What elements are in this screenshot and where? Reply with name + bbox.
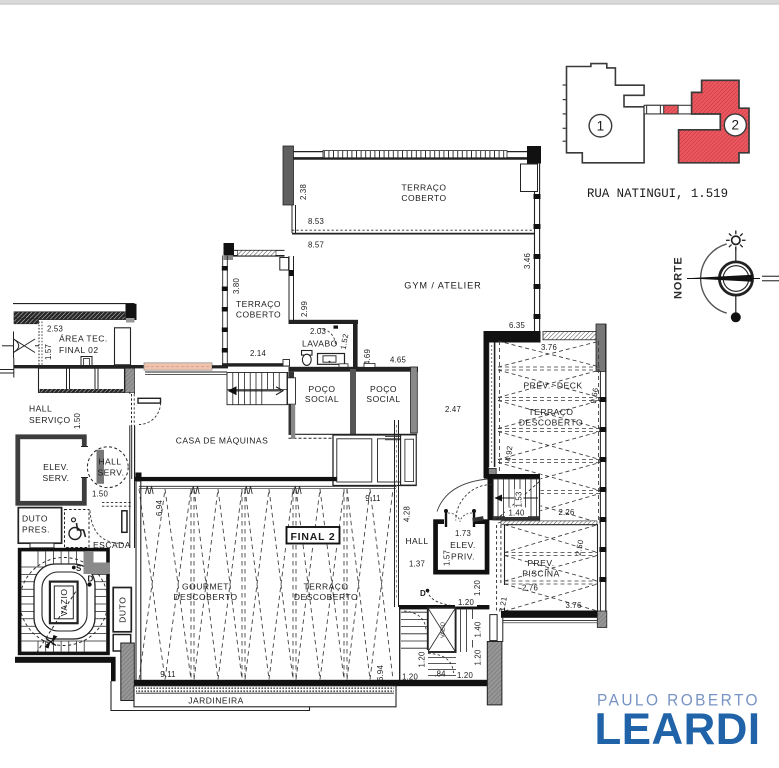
svg-text:1.53: 1.53 — [515, 492, 524, 508]
svg-text:SOCIAL: SOCIAL — [305, 394, 339, 404]
svg-text:1.57: 1.57 — [443, 550, 452, 566]
svg-text:D: D — [88, 575, 94, 584]
svg-text:4.69: 4.69 — [363, 349, 372, 365]
svg-text:HALL: HALL — [29, 404, 52, 414]
svg-text:TERRAÇO: TERRAÇO — [236, 299, 281, 309]
svg-text:1.40: 1.40 — [474, 621, 483, 637]
svg-text:1.73: 1.73 — [455, 529, 471, 538]
svg-text:1.20: 1.20 — [474, 649, 483, 665]
svg-text:3.76: 3.76 — [541, 343, 557, 352]
svg-text:1.20: 1.20 — [458, 598, 474, 607]
svg-text:9.11: 9.11 — [365, 494, 380, 503]
svg-text:1.37: 1.37 — [409, 560, 425, 569]
svg-text:6.35: 6.35 — [509, 321, 525, 330]
svg-text:3.80: 3.80 — [232, 278, 241, 294]
svg-text:1.20: 1.20 — [418, 651, 427, 667]
svg-text:HALL: HALL — [405, 536, 428, 546]
svg-text:1.50: 1.50 — [92, 490, 108, 499]
svg-text:3.46: 3.46 — [523, 253, 532, 269]
svg-text:SERV.: SERV. — [97, 468, 124, 478]
svg-text:1.20: 1.20 — [473, 580, 482, 596]
svg-text:2.38: 2.38 — [299, 184, 308, 200]
svg-text:2.99: 2.99 — [300, 301, 309, 317]
svg-text:1.50: 1.50 — [73, 413, 82, 429]
svg-text:SERVIÇO: SERVIÇO — [29, 415, 71, 425]
svg-text:NORTE: NORTE — [673, 257, 685, 300]
svg-text:JARDINEIRA: JARDINEIRA — [188, 696, 244, 706]
svg-text:PRES.: PRES. — [22, 525, 50, 535]
svg-text:2.14: 2.14 — [250, 349, 266, 358]
svg-text:4.28: 4.28 — [403, 506, 412, 522]
svg-text:DUTO: DUTO — [118, 597, 128, 623]
svg-text:GOURMET: GOURMET — [182, 582, 229, 592]
svg-text:1: 1 — [597, 118, 605, 133]
svg-text:1.20: 1.20 — [457, 671, 473, 680]
svg-text:2.47: 2.47 — [445, 405, 461, 414]
svg-text:HALL: HALL — [98, 457, 121, 467]
svg-text:FINAL 02: FINAL 02 — [59, 345, 99, 355]
svg-text:2.26: 2.26 — [559, 508, 575, 517]
svg-text:S: S — [76, 564, 82, 573]
svg-text:2.76: 2.76 — [522, 584, 538, 593]
svg-text:VAZIO: VAZIO — [59, 588, 69, 616]
svg-text:2: 2 — [732, 118, 740, 133]
svg-text:COBERTO: COBERTO — [236, 310, 281, 320]
svg-text:2.53: 2.53 — [47, 325, 63, 334]
svg-text:D: D — [420, 589, 426, 598]
svg-text:8.53: 8.53 — [308, 217, 324, 226]
svg-text:6.94: 6.94 — [155, 500, 164, 516]
svg-text:PISCINA: PISCINA — [522, 569, 560, 579]
svg-text:LEARDI: LEARDI — [595, 705, 761, 754]
svg-text:SERV.: SERV. — [42, 473, 69, 483]
svg-text:ÁREA TEC.: ÁREA TEC. — [59, 334, 108, 344]
svg-text:LAVABO: LAVABO — [302, 339, 338, 349]
svg-text:1.40: 1.40 — [509, 509, 525, 518]
svg-text:CASA DE MÁQUINAS: CASA DE MÁQUINAS — [176, 436, 269, 446]
svg-text:FINAL 2: FINAL 2 — [290, 531, 335, 543]
svg-text:8.57: 8.57 — [308, 241, 324, 250]
svg-text:TERRAÇO: TERRAÇO — [303, 582, 348, 592]
svg-text:VAZIO: VAZIO — [441, 621, 447, 638]
svg-text:9.11: 9.11 — [160, 670, 175, 679]
svg-text:DESCOBERTO: DESCOBERTO — [294, 592, 358, 602]
svg-text:ELEV.: ELEV. — [43, 462, 69, 472]
svg-text:POÇO: POÇO — [370, 384, 397, 394]
svg-text:RUA NATINGUI, 1.519: RUA NATINGUI, 1.519 — [587, 186, 728, 201]
svg-text:ELEV.: ELEV. — [450, 540, 476, 550]
svg-text:.84: .84 — [434, 670, 446, 679]
svg-text:1.20: 1.20 — [402, 673, 418, 682]
svg-text:3.76: 3.76 — [566, 601, 582, 610]
svg-text:GYM / ATELIER: GYM / ATELIER — [404, 281, 481, 291]
svg-text:COBERTO: COBERTO — [401, 193, 446, 203]
svg-text:SOCIAL: SOCIAL — [366, 394, 400, 404]
svg-text:PREV.: PREV. — [527, 558, 554, 568]
svg-text:DUTO: DUTO — [22, 514, 48, 524]
svg-text:DESCOBERTO: DESCOBERTO — [519, 418, 583, 428]
svg-text:DESCOBERTO: DESCOBERTO — [173, 592, 237, 602]
svg-text:1.57: 1.57 — [44, 344, 53, 360]
svg-text:PRIV.: PRIV. — [451, 552, 475, 562]
svg-text:TERRAÇO: TERRAÇO — [401, 183, 446, 193]
svg-text:PREV.- DECK: PREV.- DECK — [523, 381, 582, 391]
svg-text:4.65: 4.65 — [390, 356, 406, 365]
svg-text:TERRAÇO: TERRAÇO — [528, 407, 573, 417]
svg-text:6.94: 6.94 — [376, 665, 385, 681]
svg-text:2.03: 2.03 — [310, 327, 326, 336]
svg-text:POÇO: POÇO — [308, 384, 335, 394]
